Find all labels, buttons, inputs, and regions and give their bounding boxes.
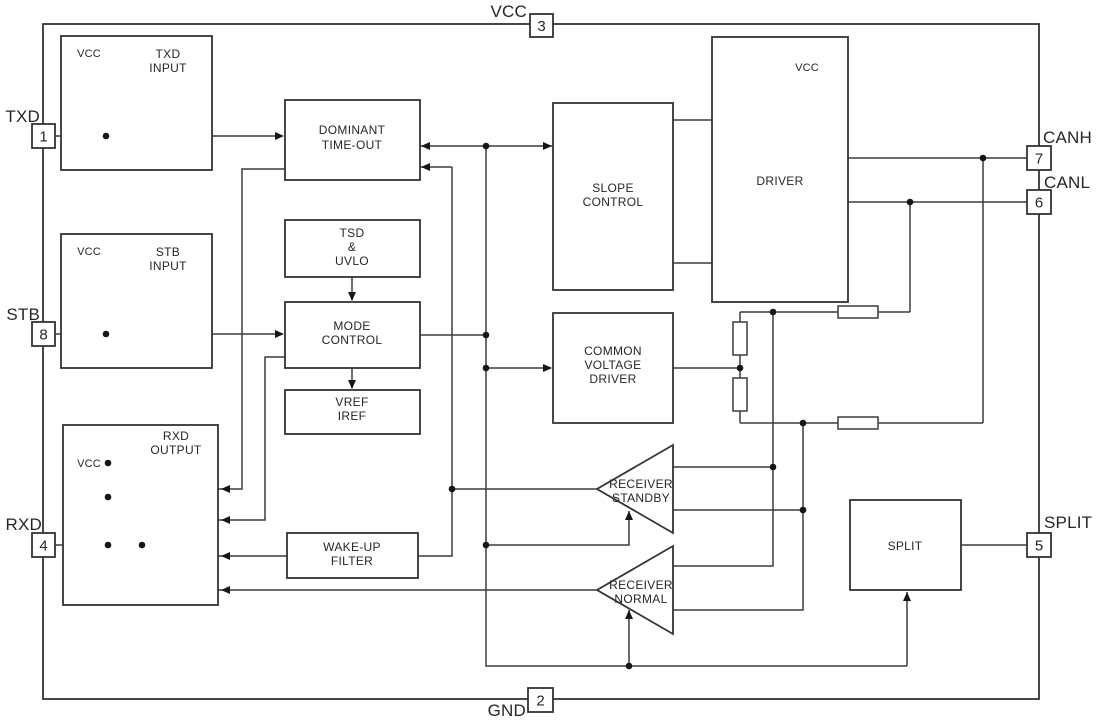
block-receiver-normal: RECEIVER NORMAL — [597, 546, 673, 634]
block-label: RECEIVER — [609, 578, 673, 592]
block-label: TXD — [156, 47, 181, 61]
block-label: VOLTAGE — [584, 358, 641, 372]
block-label: STB — [156, 245, 180, 259]
pin-number: 8 — [39, 327, 47, 344]
block-label: & — [348, 240, 356, 254]
pin-label: GND — [488, 701, 526, 720]
wire-canh-receive — [673, 423, 803, 610]
block-dominant-timeout: DOMINANT TIME-OUT — [285, 100, 420, 180]
block-label: UVLO — [335, 254, 369, 268]
pin-number: 6 — [1035, 195, 1043, 212]
block-rxd-output: RXD OUTPUT VCC — [63, 425, 218, 605]
block-vref-iref: VREF IREF — [285, 390, 420, 434]
block-receiver-standby: RECEIVER STANDBY — [597, 445, 673, 533]
pin-number: 3 — [537, 18, 545, 35]
block-label: SPLIT — [888, 539, 923, 553]
block-label: NORMAL — [614, 592, 667, 606]
block-label: OUTPUT — [150, 443, 201, 457]
block-mode-control: MODE CONTROL — [285, 302, 420, 368]
pin-stb: STB 8 — [6, 305, 55, 346]
resistors — [733, 306, 878, 429]
pin-gnd: GND 2 — [488, 688, 553, 720]
pin-canl: CANL 6 — [1027, 173, 1090, 214]
vcc-label: VCC — [795, 62, 819, 74]
resistor-canl-icon — [838, 306, 878, 318]
block-tsd-uvlo: TSD & UVLO — [285, 220, 420, 277]
pin-label: VCC — [491, 2, 528, 21]
wire-canl-receive — [673, 312, 773, 566]
pin-number: 7 — [1035, 151, 1043, 168]
block-txd-input: TXD INPUT VCC — [61, 36, 212, 170]
block-label: DRIVER — [756, 174, 803, 188]
block-label: COMMON — [584, 344, 642, 358]
block-label: CONTROL — [322, 333, 383, 347]
pin-txd: TXD 1 — [5, 107, 55, 148]
block-label: WAKE-UP — [323, 540, 381, 554]
resistor-divider-bottom-icon — [733, 378, 747, 411]
resistor-canh-icon — [838, 417, 878, 429]
block-label: FILTER — [331, 554, 373, 568]
pin-label: CANH — [1043, 128, 1092, 147]
pin-number: 4 — [39, 538, 47, 555]
vcc-label: VCC — [77, 246, 101, 258]
pin-number: 2 — [536, 693, 544, 710]
block-label: SLOPE — [592, 181, 634, 195]
resistor-divider-top-icon — [733, 322, 747, 355]
block-label: MODE — [333, 319, 370, 333]
block-label: TSD — [340, 226, 365, 240]
vcc-label: VCC — [77, 458, 101, 470]
block-stb-input: STB INPUT VCC — [61, 234, 212, 368]
block-label: RXD — [163, 429, 189, 443]
block-driver: DRIVER VCC — [712, 37, 848, 302]
pin-number: 5 — [1035, 538, 1043, 555]
block-slope-control: SLOPE CONTROL — [553, 103, 673, 290]
pin-label: SPLIT — [1044, 513, 1092, 532]
pin-number: 1 — [39, 129, 47, 146]
diagram-canvas: TXD INPUT VCC STB INPUT VCC RXD OUTPUT V… — [0, 0, 1100, 723]
block-label: TIME-OUT — [322, 138, 383, 152]
pin-label: RXD — [6, 515, 43, 534]
block-label: INPUT — [149, 61, 187, 75]
block-label: VREF — [335, 395, 368, 409]
block-wake-up-filter: WAKE-UP FILTER — [287, 533, 418, 578]
wire-divider — [673, 312, 983, 423]
block-label: STANDBY — [612, 491, 670, 505]
block-label: IREF — [338, 409, 367, 423]
pin-vcc: VCC 3 — [491, 2, 554, 37]
pin-rxd: RXD 4 — [6, 515, 56, 557]
block-split: SPLIT — [850, 500, 961, 590]
block-label: DRIVER — [589, 372, 636, 386]
pin-split: SPLIT 5 — [1027, 513, 1092, 557]
vcc-label: VCC — [77, 48, 101, 60]
block-common-voltage-driver: COMMON VOLTAGE DRIVER — [553, 313, 673, 423]
block-label: RECEIVER — [609, 477, 673, 491]
block-diagram: TXD INPUT VCC STB INPUT VCC RXD OUTPUT V… — [0, 0, 1100, 723]
block-label: CONTROL — [583, 195, 644, 209]
block-label: DOMINANT — [319, 123, 386, 137]
pin-canh: CANH 7 — [1027, 128, 1092, 170]
block-label: INPUT — [149, 259, 187, 273]
